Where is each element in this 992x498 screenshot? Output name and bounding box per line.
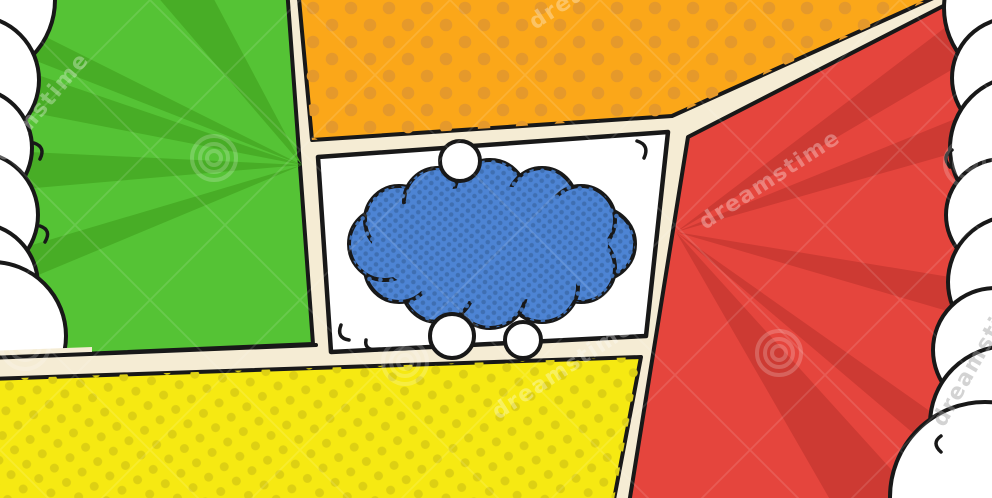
watermark-crosshatch bbox=[0, 0, 992, 498]
comic-page-illustration: dreamstime dreamstime dreamstime dreamst… bbox=[0, 0, 992, 498]
watermark-layer: dreamstime dreamstime dreamstime dreamst… bbox=[0, 0, 992, 498]
comic-page-svg: dreamstime dreamstime dreamstime dreamst… bbox=[0, 0, 992, 498]
